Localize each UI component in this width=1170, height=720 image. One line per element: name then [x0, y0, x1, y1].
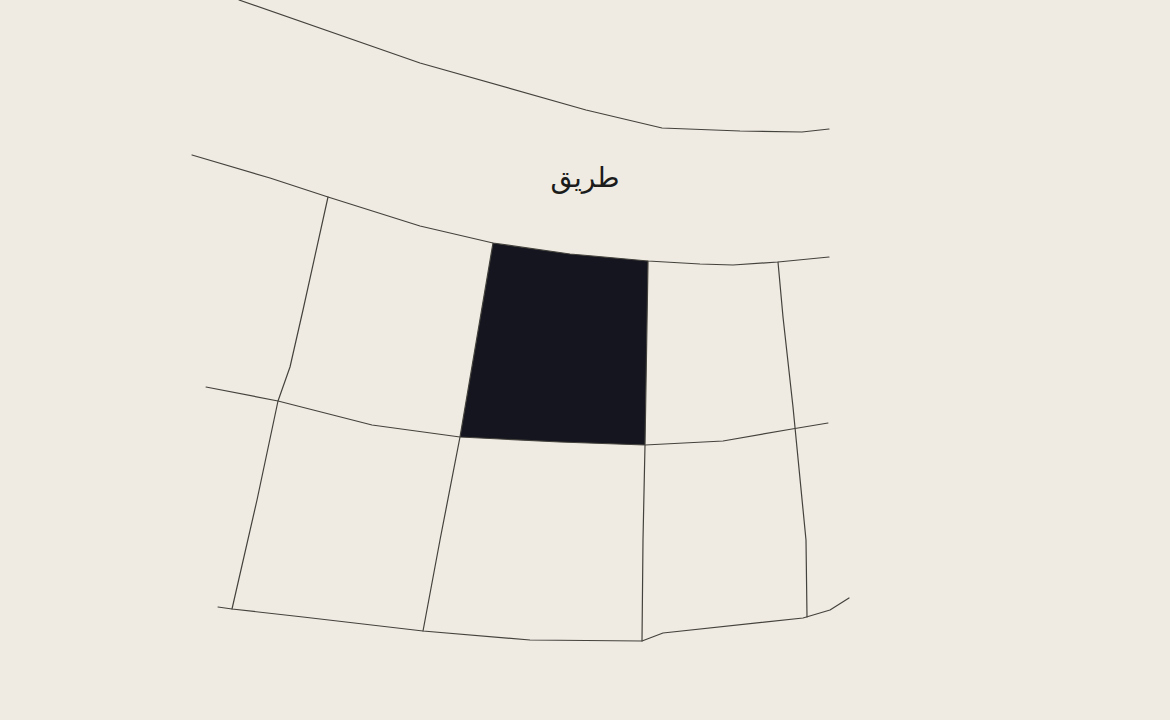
road-edge-upper: [239, 0, 829, 132]
parcel-boundary-horizontal-bottom: [218, 598, 849, 641]
road-label: طريق: [540, 161, 630, 195]
parcel-map: [0, 0, 1170, 720]
parcel-boundary-vertical-1: [232, 197, 328, 609]
parcel-boundary-vertical-4: [778, 262, 807, 617]
map-canvas[interactable]: طريق: [0, 0, 1170, 720]
